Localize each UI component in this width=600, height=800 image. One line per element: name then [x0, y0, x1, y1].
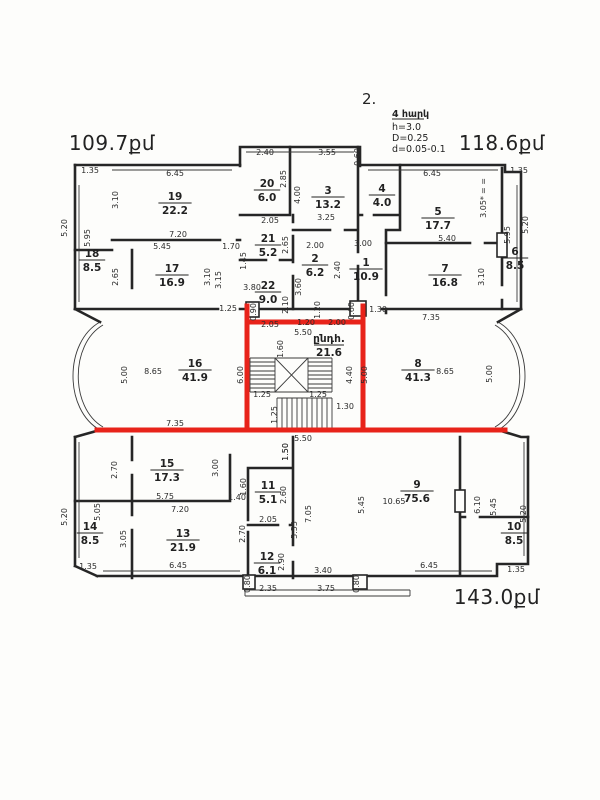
- room-area: 8.5: [506, 260, 525, 272]
- room-area: 16.9: [159, 277, 185, 289]
- dimension-label: 1.35: [81, 166, 99, 175]
- room-area: 5.1: [259, 494, 278, 506]
- room-number: 20: [260, 178, 275, 190]
- dimension-label: 1.30: [369, 305, 387, 314]
- title-block: 2. 4 հարկ h=3.0 D=0.25 d=0.05-0.1: [362, 90, 446, 155]
- room-label: 110.9: [349, 257, 382, 283]
- room-label: 215.2: [255, 233, 281, 259]
- room-label: 1716.9: [155, 263, 188, 289]
- dimension-label: 2.00: [328, 318, 346, 327]
- dimension-label: 1.35: [507, 565, 525, 574]
- dimension-label: 1.70: [222, 242, 240, 251]
- dimension-label: 4.00: [293, 186, 302, 204]
- floor-mark: 2.: [362, 90, 376, 108]
- floor-plan-canvas: 109.7քմ118.6քմ143.0քմ 1922.2206.0313.244…: [0, 0, 600, 800]
- room-area: 41.3: [405, 372, 431, 384]
- windows-layer: [73, 152, 525, 596]
- note-title: 4 հարկ: [392, 109, 429, 120]
- dimension-label: 2.65: [111, 268, 120, 286]
- dimension-label: 3.15: [214, 271, 223, 289]
- dimension-label: 2.05: [259, 515, 277, 524]
- dimension-label: 2.00: [306, 241, 324, 250]
- apartment-area-label: 118.6քմ: [459, 131, 545, 155]
- dimension-label: 1.30: [336, 402, 354, 411]
- room-area: 8.5: [505, 535, 524, 547]
- room-area: 13.2: [315, 199, 341, 211]
- room-number: 6: [511, 246, 518, 258]
- dimension-label: 0.60: [353, 148, 362, 166]
- apartment-area-label: 143.0քմ: [454, 585, 540, 609]
- room-area: 5.2: [259, 247, 278, 259]
- room-number: 21: [261, 233, 276, 245]
- dimension-label: 3.10: [203, 268, 212, 286]
- dimension-label: 2.35: [259, 584, 277, 593]
- dimension-label: 1.50: [281, 443, 290, 461]
- dimension-label: 5.75: [156, 492, 174, 501]
- room-number: 17: [165, 263, 180, 275]
- room-number: 12: [260, 551, 275, 563]
- dimension-label: 2.10: [281, 296, 290, 314]
- dimension-label: 2.85: [279, 170, 288, 188]
- dimension-label: 5.20: [521, 216, 530, 234]
- dimension-label: 3.60: [294, 278, 303, 296]
- elevator-x-icon: [275, 358, 308, 392]
- dimension-label: 2.05: [261, 216, 279, 225]
- dimension-label: 1.35: [510, 166, 528, 175]
- room-label: 716.8: [428, 263, 461, 289]
- dimension-label: 3.40: [314, 566, 332, 575]
- dimension-label: 3.25: [317, 213, 335, 222]
- room-number: 18: [85, 248, 100, 260]
- dimension-label: 2.05: [261, 320, 279, 329]
- room-label: 44.0: [369, 183, 395, 209]
- scanned-floor-plan-page: 109.7քմ118.6քմ143.0քմ 1922.2206.0313.244…: [0, 0, 600, 800]
- dimension-label: 5.00: [360, 366, 369, 384]
- dimension-label: 5.40: [438, 234, 456, 243]
- dimension-label: 4.40: [345, 366, 354, 384]
- room-label: 841.3: [401, 358, 434, 384]
- dimension-label: 2.40: [256, 148, 274, 157]
- room-area: 8.5: [81, 535, 100, 547]
- walls-layer: [75, 147, 528, 589]
- dimension-label: 5.20: [60, 508, 69, 526]
- dimension-label: 7.35: [166, 419, 184, 428]
- dimension-label: 3.55: [318, 148, 336, 157]
- dimension-label: 3.75: [317, 584, 335, 593]
- dimension-label: 1.20: [313, 301, 322, 319]
- room-area: 17.7: [425, 220, 451, 232]
- room-area: 6.1: [258, 565, 277, 577]
- room-area: 16.8: [432, 277, 458, 289]
- room-area: 17.3: [154, 472, 180, 484]
- dimension-label: 1.60: [276, 340, 285, 358]
- dimension-label: 3.80: [243, 283, 261, 292]
- room-number: 16: [188, 358, 203, 370]
- room-number: 8: [414, 358, 421, 370]
- room-area: 6.2: [306, 267, 325, 279]
- dimension-label: 7.20: [171, 505, 189, 514]
- apartment-area-label: 109.7քմ: [69, 131, 155, 155]
- room-area: 21.9: [170, 542, 196, 554]
- room-label: 313.2: [311, 185, 344, 211]
- dimension-label: 6.45: [169, 561, 187, 570]
- room-number: 4: [378, 183, 385, 195]
- room-number: 9: [413, 479, 420, 491]
- room-area: 75.6: [404, 493, 430, 505]
- note-h: h=3.0: [392, 122, 421, 133]
- hall-name: ընդհ.: [313, 333, 345, 345]
- dimension-label: 5.50: [294, 434, 312, 443]
- room-label: 1641.9: [178, 358, 211, 384]
- dimension-label: 2.65: [281, 236, 290, 254]
- stair-flight-lower-treads: [277, 398, 332, 428]
- dimension-label: 1.20: [297, 318, 315, 327]
- room-label: 206.0: [254, 178, 280, 204]
- dimension-label: 8.65: [144, 367, 162, 376]
- dimension-label: 5.95: [503, 226, 512, 244]
- dimension-label: 5.20: [519, 505, 528, 523]
- hall-area: 21.6: [316, 347, 342, 359]
- dimension-label: 0.90: [249, 303, 258, 321]
- note-d: d=0.05-0.1: [392, 144, 446, 155]
- room-area: 22.2: [162, 205, 188, 217]
- room-label: 108.5: [501, 521, 527, 547]
- dimension-label: 7.35: [422, 313, 440, 322]
- hall-label: ընդհ. 21.6: [313, 333, 345, 359]
- dimension-label: 8.65: [436, 367, 454, 376]
- stair-flight-right-treads: [308, 362, 332, 388]
- dimension-label: 3.00: [354, 239, 372, 248]
- dimension-label: 6.45: [423, 169, 441, 178]
- dimension-label: 5.95: [83, 229, 92, 247]
- room-number: 2: [311, 253, 318, 265]
- dimension-label: 5.00: [485, 365, 494, 383]
- dimension-label: 3.05*: [479, 196, 488, 218]
- dimension-label: 6.00: [236, 366, 245, 384]
- room-number: 19: [168, 191, 183, 203]
- room-number: 22: [261, 280, 276, 292]
- bay-window-left: [73, 322, 103, 430]
- dimension-label: 1.25: [270, 406, 279, 424]
- room-number: 14: [83, 521, 98, 533]
- dimension-label: 2.90: [277, 553, 286, 571]
- pier-room9: [455, 490, 465, 512]
- dimension-label: 2.70: [110, 461, 119, 479]
- room-number: 5: [434, 206, 441, 218]
- room-label: 188.5: [79, 248, 105, 274]
- room-number: 15: [160, 458, 175, 470]
- dimension-label: 1.60: [239, 478, 248, 496]
- room-area: 41.9: [182, 372, 208, 384]
- dimension-label: 5.50: [294, 328, 312, 337]
- bay-window-right: [495, 322, 525, 430]
- room-label: 1321.9: [166, 528, 199, 554]
- dimension-label: 6.10: [473, 496, 482, 514]
- room-number: 7: [441, 263, 448, 275]
- dimension-label: 5.45: [489, 498, 498, 516]
- room-area: 10.9: [353, 271, 379, 283]
- dimension-label: 5.55: [290, 521, 299, 539]
- dimension-label: 1.35: [79, 562, 97, 571]
- room-area: 4.0: [373, 197, 392, 209]
- dimension-label: 6.45: [166, 169, 184, 178]
- dimension-label: 5.20: [60, 219, 69, 237]
- dimension-label: 5.45: [153, 242, 171, 251]
- room-label: 517.7: [421, 206, 454, 232]
- dimension-label: 7.05: [304, 505, 313, 523]
- stair-flight-left-treads: [250, 362, 275, 388]
- dimension-label: 0.80: [243, 575, 252, 593]
- dimension-label: 1.25: [219, 304, 237, 313]
- dimension-label: 5.05: [93, 503, 102, 521]
- room-number: 13: [176, 528, 191, 540]
- apartment-area-labels: 109.7քմ118.6քմ143.0քմ: [69, 131, 545, 609]
- dimension-label: 1.25: [253, 390, 271, 399]
- room-number: 11: [261, 480, 276, 492]
- dimension-label: 0.80: [352, 575, 361, 593]
- dimension-label: 2.40: [333, 261, 342, 279]
- room-number: 3: [324, 185, 331, 197]
- dimension-label: 7.20: [169, 230, 187, 239]
- dimension-label: 5.00: [120, 366, 129, 384]
- dimension-label: 3.05: [119, 530, 128, 548]
- dimension-label: 10.65: [383, 497, 406, 506]
- dimension-label: 0.60: [347, 302, 356, 320]
- dimension-label: 1.25: [309, 390, 327, 399]
- room-area: 6.0: [258, 192, 277, 204]
- dimension-label: 6.45: [420, 561, 438, 570]
- dimension-label: 3.00: [211, 459, 220, 477]
- dimension-label: = =: [479, 178, 488, 194]
- room-label: 26.2: [302, 253, 328, 279]
- room-label: 115.1: [255, 480, 281, 506]
- dimension-label: 1.45: [239, 252, 248, 270]
- dimension-label: 3.10: [477, 268, 486, 286]
- dimension-label: 2.70: [238, 525, 247, 543]
- room-area: 8.5: [83, 262, 102, 274]
- dimension-label: 5.45: [357, 496, 366, 514]
- room-number: 1: [362, 257, 369, 269]
- dimension-label: 3.10: [111, 191, 120, 209]
- room-area: 9.0: [259, 294, 278, 306]
- dimension-label: 2.60: [279, 486, 288, 504]
- room-label: 1922.2: [158, 191, 191, 217]
- note-D: D=0.25: [392, 133, 428, 144]
- room-label: 148.5: [77, 521, 103, 547]
- room-label: 1517.3: [150, 458, 183, 484]
